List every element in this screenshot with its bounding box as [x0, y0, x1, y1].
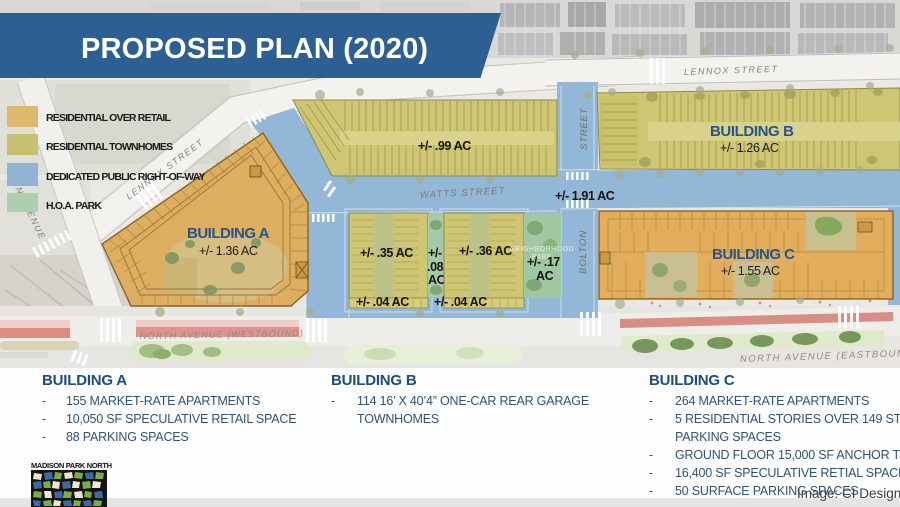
svg-text:AC: AC — [428, 273, 446, 287]
svg-text:+/- .35 AC: +/- .35 AC — [360, 246, 413, 260]
svg-text:+/- 1.55 AC: +/- 1.55 AC — [721, 264, 780, 278]
svg-text:BOLTON: BOLTON — [578, 230, 589, 274]
svg-text:+/-: +/- — [428, 246, 442, 260]
svg-text:+/- .36 AC: +/- .36 AC — [459, 244, 512, 258]
svg-text:+/- 1.26 AC: +/- 1.26 AC — [720, 141, 779, 155]
svg-text:.08: .08 — [427, 260, 444, 274]
svg-text:STREET: STREET — [579, 107, 590, 150]
svg-text:+/- .04 AC: +/- .04 AC — [356, 295, 409, 309]
svg-text:+/- 1.91 AC: +/- 1.91 AC — [555, 189, 615, 203]
svg-text:BUILDING B: BUILDING B — [710, 123, 794, 140]
svg-text:+/- .99 AC: +/- .99 AC — [418, 139, 471, 153]
svg-text:BUILDING A: BUILDING A — [187, 225, 270, 242]
svg-text:+/- .04 AC: +/- .04 AC — [434, 295, 487, 309]
svg-text:BUILDING C: BUILDING C — [712, 246, 795, 263]
svg-text:NEIGHBORHOOD: NEIGHBORHOOD — [510, 246, 574, 253]
svg-text:AC: AC — [536, 269, 554, 283]
svg-text:+/- .17: +/- .17 — [527, 255, 560, 269]
svg-text:+/- 1.36 AC: +/- 1.36 AC — [199, 244, 258, 258]
